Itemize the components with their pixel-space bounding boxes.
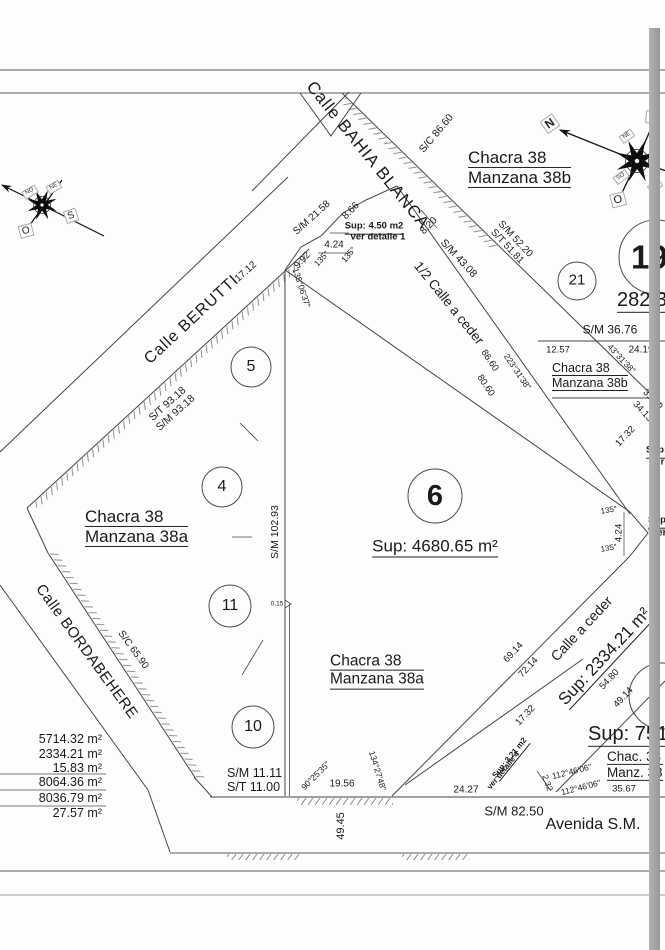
area-table-row-2: 2334.21 m² [39, 747, 102, 761]
dim-19-56: 19.56 [329, 778, 354, 789]
parcel-number-5: 5 [247, 358, 256, 376]
chacra-38-mid: Chacra 38 [552, 361, 628, 376]
block-label-38a-left: Chacra 38 Manzana 38a [85, 507, 188, 547]
parcel-number-10: 10 [244, 718, 262, 736]
parcel-6-area: Sup: 4680.65 m² [372, 536, 498, 557]
chacra-38-top: Chacra 38 [468, 148, 571, 168]
dim-35-67: 35.67 [612, 785, 636, 796]
dim-12-57: 12.57 [546, 346, 570, 357]
page-edge-bar [649, 28, 660, 950]
dim-sm-11-11: S/M 11.11 [227, 766, 282, 780]
area-table-row-1: 5714.32 m² [39, 732, 102, 746]
street-label-avenida: Avenida S.M. [546, 816, 641, 834]
block-label-38b-mid: Chacra 38 Manzana 38b [552, 361, 628, 391]
manzana-38b-mid: Manzana 38b [552, 376, 628, 391]
dim-st-11-00: S/T 11.00 [227, 780, 282, 794]
dim-4-24-top: 4.24 [324, 239, 343, 250]
dim-24-27: 24.27 [453, 784, 478, 795]
parcel-number-11: 11 [222, 597, 239, 615]
block-label-38a-bottom: Chacra 38 Manzana 38a [330, 653, 424, 690]
parcel-number-4: 4 [218, 478, 227, 496]
area-table-row-4: 8064.36 m² [39, 775, 102, 789]
dim-sm1111-st1100: S/M 11.11 S/T 11.00 [227, 766, 282, 794]
dim-4-24-right: 4.24 [615, 524, 626, 543]
dim-sm-102-93: S/M 102.93 [270, 505, 282, 559]
dim-sm-82-50: S/M 82.50 [484, 805, 543, 820]
dim-0-15: 0.15 [271, 600, 284, 607]
manzana-38a-left: Manzana 38a [85, 527, 188, 547]
area-table-row-5: 8036.79 m² [39, 791, 102, 805]
survey-plan: Calle BAHIA BLANCA Calle BERUTTI Calle B… [0, 0, 665, 950]
parcel-number-21: 21 [569, 273, 586, 290]
chacra-38-left: Chacra 38 [85, 507, 188, 527]
parcel-number-6: 6 [427, 480, 443, 512]
detail-1-note: ver detalle 1 [351, 233, 406, 244]
area-table-row-6: 27.57 m² [53, 806, 102, 820]
manzana-38a-bottom: Manzana 38a [330, 671, 424, 689]
chacra-38-bottom: Chacra 38 [330, 653, 424, 671]
dim-49-45: 49.45 [335, 812, 347, 840]
dim-sm-36-76: S/M 36.76 [583, 323, 638, 336]
area-table-row-3: 15.83 m² [53, 761, 102, 775]
manzana-38b-top: Manzana 38b [468, 168, 571, 188]
block-label-38b-top: Chacra 38 Manzana 38b [468, 148, 571, 188]
